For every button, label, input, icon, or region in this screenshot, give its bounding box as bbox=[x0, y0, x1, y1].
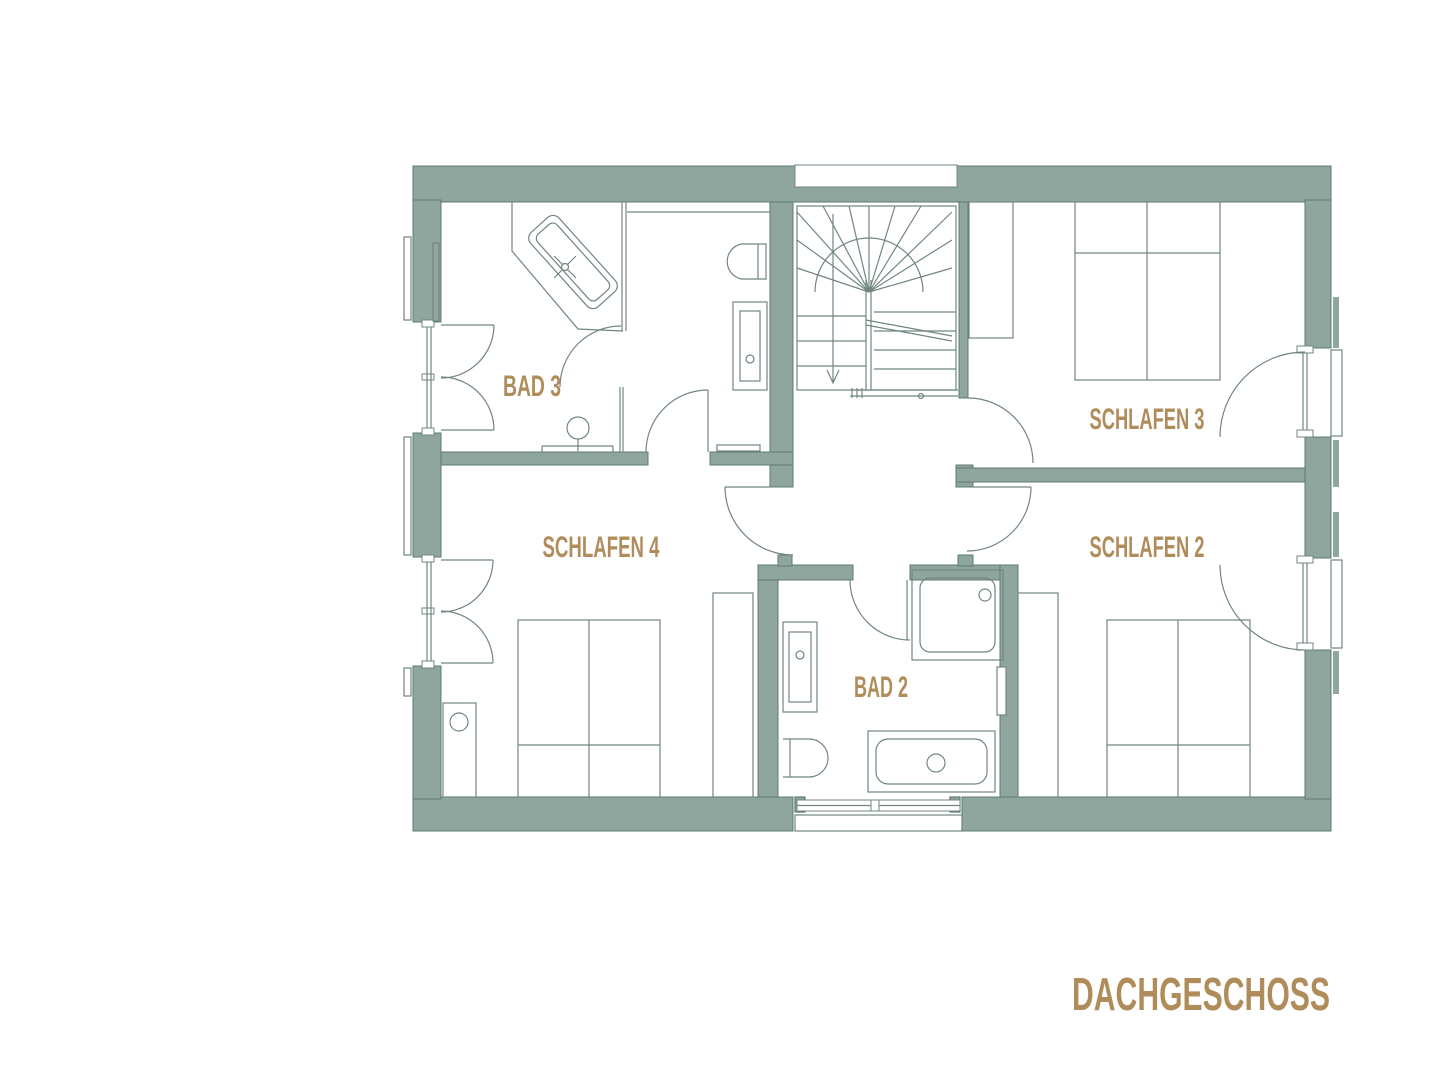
door-swing-arc bbox=[441, 325, 494, 378]
sill-right-1 bbox=[1333, 297, 1339, 348]
room-label-schlafen3: SCHLAFEN 3 bbox=[1090, 403, 1205, 436]
wall-right-b bbox=[1305, 437, 1331, 558]
window-left-schlafen4 bbox=[422, 555, 493, 668]
sink-bowl bbox=[567, 417, 589, 439]
wall-right-a bbox=[1305, 200, 1331, 348]
room-label-bad2: BAD 2 bbox=[854, 671, 908, 704]
schlafen3-furniture bbox=[969, 202, 1220, 380]
wall-bad3-south bbox=[441, 452, 648, 465]
shower-outline bbox=[912, 570, 1003, 660]
window-mid-cap bbox=[871, 800, 879, 811]
room-label-bad3: BAD 3 bbox=[503, 370, 561, 403]
shower-bad2 bbox=[912, 570, 1003, 660]
stair-newel bbox=[866, 280, 871, 390]
vanity-bad3 bbox=[733, 302, 767, 390]
window-jamb-cap bbox=[1297, 643, 1313, 650]
wall-bottom-left bbox=[413, 797, 793, 831]
window-outer-recess bbox=[795, 815, 962, 831]
window-jamb-cap bbox=[422, 320, 434, 327]
sill-right-2 bbox=[1333, 440, 1339, 487]
bad3-fixtures bbox=[433, 202, 770, 452]
roof-dormer-notch bbox=[795, 165, 957, 187]
door-swing-arc bbox=[560, 326, 621, 387]
wardrobe-schlafen4 bbox=[713, 593, 753, 797]
vanity-counter bbox=[733, 302, 767, 390]
bed-schlafen3 bbox=[1075, 202, 1220, 380]
handrail-lines bbox=[850, 390, 958, 396]
stair-radial-treads bbox=[797, 206, 952, 292]
floor-plan: BAD 3 SCHLAFEN 3 SCHLAFEN 4 SCHLAFEN 2 B… bbox=[0, 0, 1440, 1080]
bed-schlafen2 bbox=[1107, 620, 1250, 797]
door-swing-arc bbox=[441, 560, 493, 612]
sill-right-4 bbox=[1333, 651, 1339, 694]
door-swing-arc bbox=[725, 487, 793, 555]
room-label-schlafen2: SCHLAFEN 2 bbox=[1090, 531, 1205, 564]
bed-schlafen4 bbox=[518, 620, 660, 797]
sill-right-3 bbox=[1333, 512, 1339, 557]
drain-symbol-center bbox=[562, 264, 569, 271]
wall-niche bbox=[997, 667, 1006, 715]
sill-left-3 bbox=[404, 668, 411, 696]
outer-frame-right-2 bbox=[1331, 560, 1342, 648]
pedestal-sink bbox=[542, 417, 613, 452]
window-mid-cap bbox=[422, 374, 434, 380]
tub-inner bbox=[876, 739, 987, 784]
corner-tub-partition bbox=[622, 202, 626, 331]
room-label-schlafen4: SCHLAFEN 4 bbox=[543, 531, 660, 564]
stair-handrail bbox=[850, 388, 958, 399]
toilet-bad3 bbox=[727, 244, 766, 279]
tub-outer bbox=[525, 212, 620, 312]
window-jamb-cap bbox=[1297, 430, 1313, 437]
window-bottom-bad2 bbox=[795, 797, 962, 831]
wall-stair-left bbox=[770, 202, 793, 465]
door-bad2 bbox=[850, 580, 910, 640]
vanity-bad2 bbox=[783, 622, 817, 712]
window-jamb-cap bbox=[1297, 556, 1313, 563]
door-swing-arc bbox=[1220, 352, 1305, 437]
door-bad3 bbox=[646, 390, 708, 452]
toilet-bad2 bbox=[783, 739, 828, 777]
window-jamb-cap bbox=[422, 428, 434, 435]
washstand-bowl bbox=[450, 713, 468, 731]
window-jamb-cap bbox=[422, 661, 434, 668]
staircase bbox=[797, 206, 958, 399]
door-swing-arc bbox=[967, 487, 1031, 551]
wall-bad2-nub-left bbox=[778, 555, 792, 566]
door-swing-arc bbox=[850, 580, 910, 640]
washstand-outline bbox=[443, 703, 476, 797]
door-schlafen4 bbox=[725, 487, 793, 555]
schlafen4-furniture bbox=[443, 593, 753, 797]
corner-bathtub bbox=[525, 212, 620, 312]
sill-left-2 bbox=[404, 437, 411, 555]
door-swing-arc bbox=[441, 377, 494, 430]
vanity-basin bbox=[740, 311, 760, 381]
window-mid-cap bbox=[422, 608, 434, 614]
window-right-schlafen3 bbox=[1220, 346, 1313, 437]
stair-treads-right bbox=[874, 312, 956, 369]
door-swing-arc bbox=[646, 390, 708, 452]
wall-stair-right bbox=[959, 202, 968, 398]
bathtub-bad2 bbox=[868, 731, 995, 792]
wall-hall-nw bbox=[710, 452, 793, 465]
faucet bbox=[796, 651, 804, 659]
door-swing-arc-schlafen3 bbox=[968, 398, 1033, 463]
stair-direction-arrow bbox=[827, 214, 839, 383]
washstand-schlafen4 bbox=[443, 703, 476, 797]
wall-bottom-right bbox=[962, 797, 1331, 831]
wall-bad2-top-left bbox=[758, 565, 853, 580]
outer-frame-right-1 bbox=[1331, 350, 1342, 436]
door-swing-arc bbox=[1220, 565, 1305, 650]
vanity-counter bbox=[783, 622, 817, 712]
window-frame bbox=[1303, 563, 1307, 643]
wall-left-a bbox=[413, 200, 441, 322]
wall-schlafen32 bbox=[956, 468, 1305, 482]
wardrobe-schlafen3 bbox=[969, 202, 1013, 338]
stair-treads-left bbox=[797, 316, 866, 366]
wall-bad2-left bbox=[758, 565, 778, 797]
sill-left-1 bbox=[404, 237, 411, 320]
wc-shelf bbox=[717, 445, 760, 451]
window-right-schlafen2 bbox=[1220, 556, 1313, 650]
wall-bad2-nub-right bbox=[958, 555, 973, 566]
door-swing-arc bbox=[441, 611, 493, 663]
door-bad3-inner bbox=[560, 326, 623, 452]
shower-drain bbox=[979, 589, 991, 601]
window-left-bad3 bbox=[422, 320, 494, 435]
wall-right-c bbox=[1305, 650, 1331, 799]
schlafen2-furniture bbox=[1018, 593, 1250, 797]
faucet bbox=[746, 355, 754, 363]
window-jamb-cap bbox=[422, 555, 434, 562]
partition-line bbox=[620, 387, 623, 452]
wall-left-b bbox=[413, 433, 441, 557]
stair-outline bbox=[797, 206, 956, 390]
tub-drain bbox=[927, 754, 945, 772]
vanity-basin bbox=[789, 632, 811, 702]
wardrobe-schlafen2 bbox=[1018, 593, 1058, 797]
window-frame bbox=[1303, 353, 1307, 430]
wall-stair-left-foot bbox=[770, 465, 793, 487]
tub-outer bbox=[868, 731, 995, 792]
wall-left-c bbox=[413, 666, 441, 799]
door-schlafen2 bbox=[967, 487, 1031, 551]
floor-title: DACHGESCHOSS bbox=[1072, 968, 1330, 1020]
